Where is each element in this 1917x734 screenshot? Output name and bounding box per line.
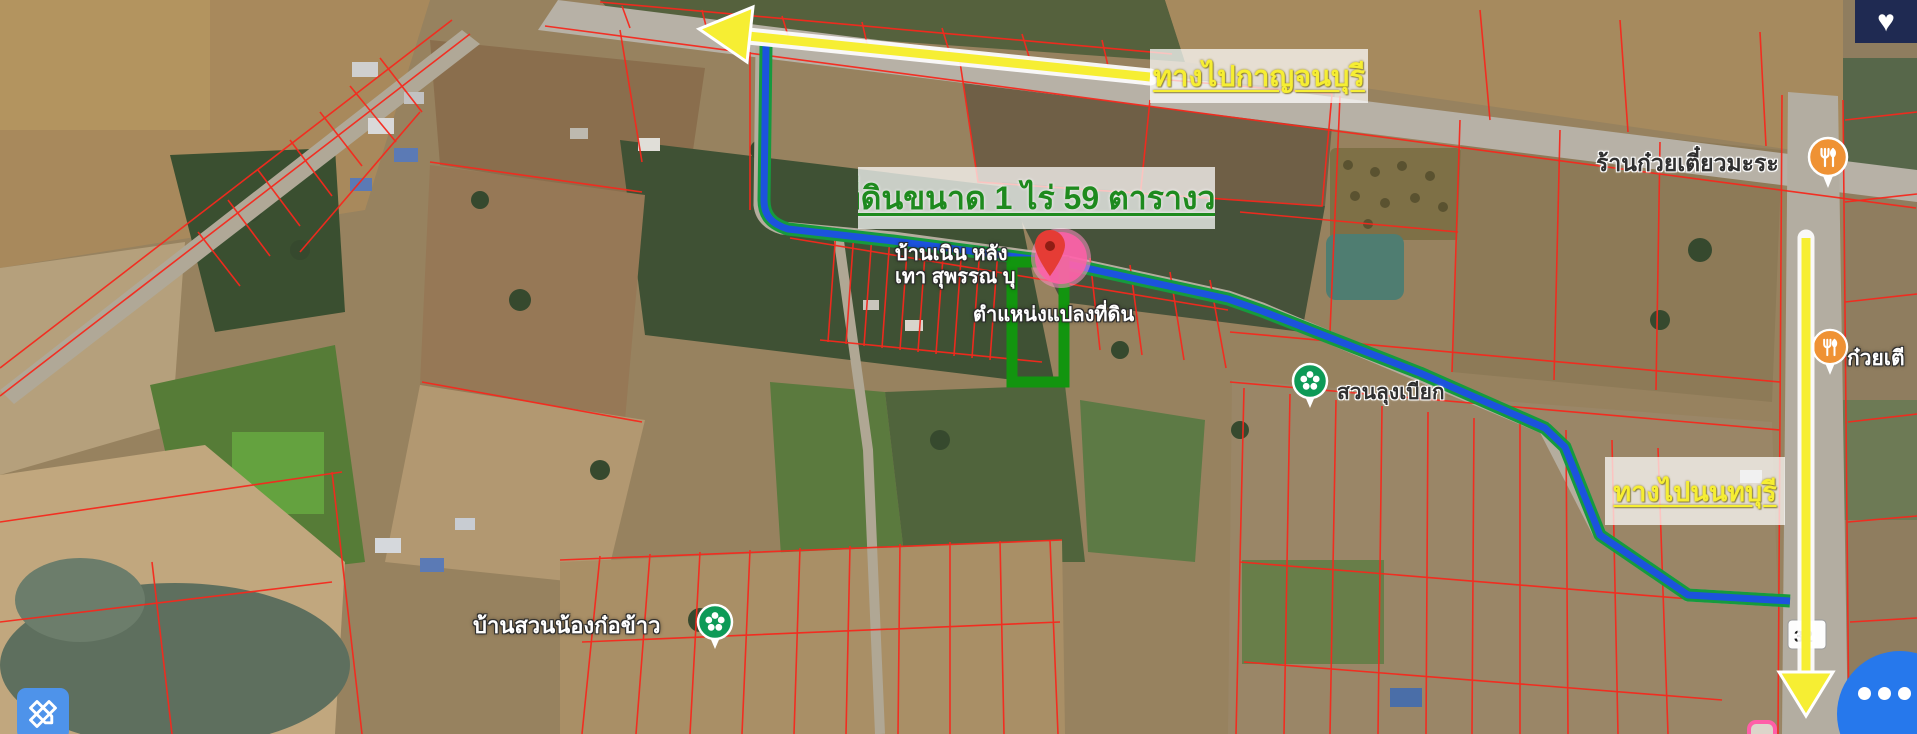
- place-label-noodle-shop-edge[interactable]: ก๋วยเตี: [1847, 342, 1905, 375]
- label-plot-position: ตำแหน่งแปลงที่ดิน: [973, 298, 1134, 330]
- place-label-village-house[interactable]: บ้านเนิน หลัง เทา สุพรรณ บุ: [895, 243, 1016, 289]
- ellipsis-icon: [1858, 687, 1911, 700]
- label-land-size: ที่ดินขนาด 1 ไร่ 59 ตารางวา: [858, 167, 1215, 229]
- edit-map-button[interactable]: [17, 688, 69, 734]
- place-label-village-house-line1: บ้านเนิน หลัง: [895, 243, 1016, 266]
- map-graphics: 32: [0, 0, 1917, 734]
- label-to-nonthaburi: ทางไปนนทบุรี: [1605, 457, 1785, 525]
- pencil-ruler-icon: [26, 697, 60, 731]
- terrain-patches: [0, 0, 1917, 734]
- place-label-noodle-shop[interactable]: ร้านก๋วยเตี๋ยวมะระ: [1596, 146, 1779, 182]
- favorite-button[interactable]: ♥: [1855, 0, 1917, 43]
- satellite-map[interactable]: 32 ทางไปกาญจนบุรี ที่ดินขนาด 1 ไร่ 59 ตา…: [0, 0, 1917, 734]
- heart-icon: ♥: [1877, 5, 1895, 38]
- plot-location-marker[interactable]: [1031, 228, 1091, 288]
- place-label-uncle-biak-garden[interactable]: สวนลุงเบียก: [1337, 376, 1445, 409]
- pink-marker-partial: [1747, 720, 1777, 734]
- place-label-baan-suan[interactable]: บ้านสวนน้องก๋อข้าว: [473, 608, 660, 643]
- label-to-kanchanaburi: ทางไปกาญจนบุรี: [1150, 49, 1368, 103]
- place-label-village-house-line2: เทา สุพรรณ บุ: [895, 266, 1016, 289]
